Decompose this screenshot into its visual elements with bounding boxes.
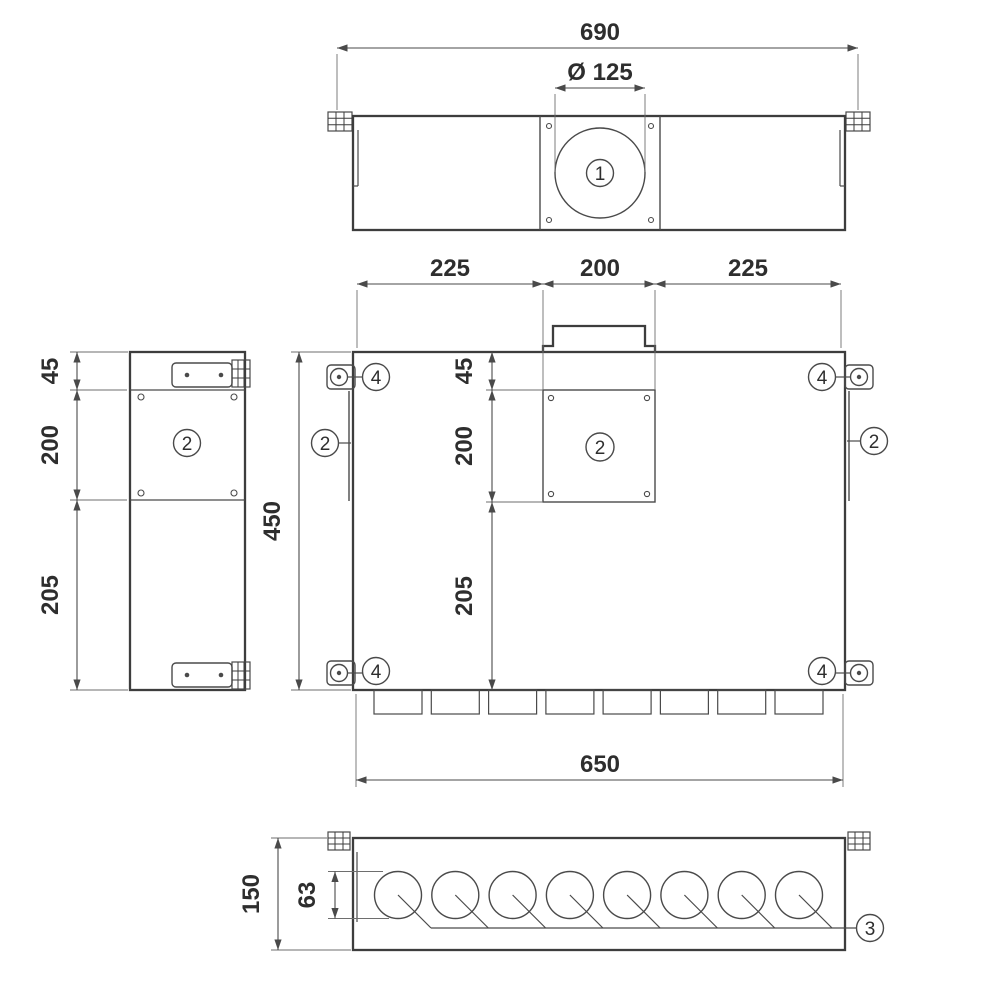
dim-63-label: 63: [294, 882, 321, 909]
screw: [644, 395, 649, 400]
dim-chain-side-vertical: 45 200 205: [37, 352, 128, 690]
dim-205-label: 205: [451, 576, 478, 616]
bottom-tab: [374, 690, 422, 714]
mounting-bracket-top: [172, 360, 250, 387]
mounting-bracket-top-right: 4: [809, 364, 874, 391]
bottom-view-outline: [353, 838, 845, 950]
connector-lug-right: [848, 832, 870, 850]
callout-3-label: 3: [865, 919, 876, 940]
screw: [547, 218, 552, 223]
access-panel: 2: [543, 390, 655, 502]
callout-2-left: 2: [312, 430, 352, 457]
screw: [548, 395, 553, 400]
dim-205-label: 205: [37, 575, 64, 615]
technical-drawing: 1 690 Ø 125 4: [0, 0, 1000, 1000]
dim-650: 650: [356, 694, 843, 787]
side-view-outline: [130, 352, 245, 690]
dim-200-label: 200: [451, 426, 478, 466]
mounting-bracket-bottom-left: 4: [327, 658, 390, 686]
bottom-tab: [660, 690, 708, 714]
dim-650-label: 650: [580, 751, 620, 778]
dim-45-label: 45: [37, 358, 64, 385]
top-view: 1 690 Ø 125: [328, 19, 870, 230]
dim-225-right-label: 225: [728, 255, 768, 282]
dim-125-label: Ø 125: [567, 59, 632, 86]
screw: [138, 394, 144, 400]
outlet-leader-lines: [398, 895, 857, 928]
callout-1-label: 1: [595, 164, 606, 185]
connector-lug-left: [328, 832, 350, 850]
dim-690-label: 690: [580, 19, 620, 46]
dim-45-label: 45: [451, 358, 478, 385]
bottom-tab: [718, 690, 766, 714]
bottom-tabs: [374, 690, 823, 714]
mounting-bracket-top-left: 4: [327, 364, 390, 391]
callout-3: 3: [857, 915, 884, 942]
dim-450-label: 450: [259, 501, 286, 541]
screw: [649, 218, 654, 223]
bottom-tab: [546, 690, 594, 714]
mounting-bracket-bottom-right: 4: [809, 658, 874, 686]
front-view: 4 4 4 4 2: [259, 255, 888, 787]
bottom-tab: [775, 690, 823, 714]
screw: [547, 124, 552, 129]
screw: [644, 491, 649, 496]
callout-1: 1: [587, 160, 614, 187]
dim-chain-top: 225 200 225: [357, 255, 841, 390]
callout-2-label: 2: [595, 438, 606, 459]
bottom-tab: [489, 690, 537, 714]
callout-2-label: 2: [869, 432, 880, 453]
connector-lug-left: [328, 112, 352, 131]
connector-lug-right: [846, 112, 870, 131]
callout-2-label: 2: [320, 434, 331, 455]
screw: [649, 124, 654, 129]
dim-200-label: 200: [580, 255, 620, 282]
bottom-view: 3 150 63: [238, 832, 884, 950]
screw: [548, 491, 553, 496]
callout-2-label: 2: [182, 434, 193, 455]
front-view-outline: [353, 352, 845, 690]
mounting-bracket-bottom: [172, 662, 250, 689]
callout-2-side-view: 2: [174, 430, 201, 457]
dim-450: 450: [259, 352, 351, 690]
bottom-tab: [431, 690, 479, 714]
callout-4-label: 4: [371, 662, 382, 683]
top-spigot-tab: [543, 326, 655, 352]
bottom-tab: [603, 690, 651, 714]
callout-4-label: 4: [817, 368, 828, 389]
callout-2-right: 2: [847, 428, 888, 455]
side-view: 2 45 200 205: [37, 352, 250, 690]
dim-225-left-label: 225: [430, 255, 470, 282]
callout-4-label: 4: [817, 662, 828, 683]
dim-200-label: 200: [37, 425, 64, 465]
dim-150-label: 150: [238, 874, 265, 914]
outlet-circles: [375, 872, 823, 919]
screw: [231, 490, 237, 496]
callout-4-label: 4: [371, 368, 382, 389]
screw: [138, 490, 144, 496]
dim-chain-front-vertical: 45 200 205: [451, 352, 543, 690]
screw: [231, 394, 237, 400]
